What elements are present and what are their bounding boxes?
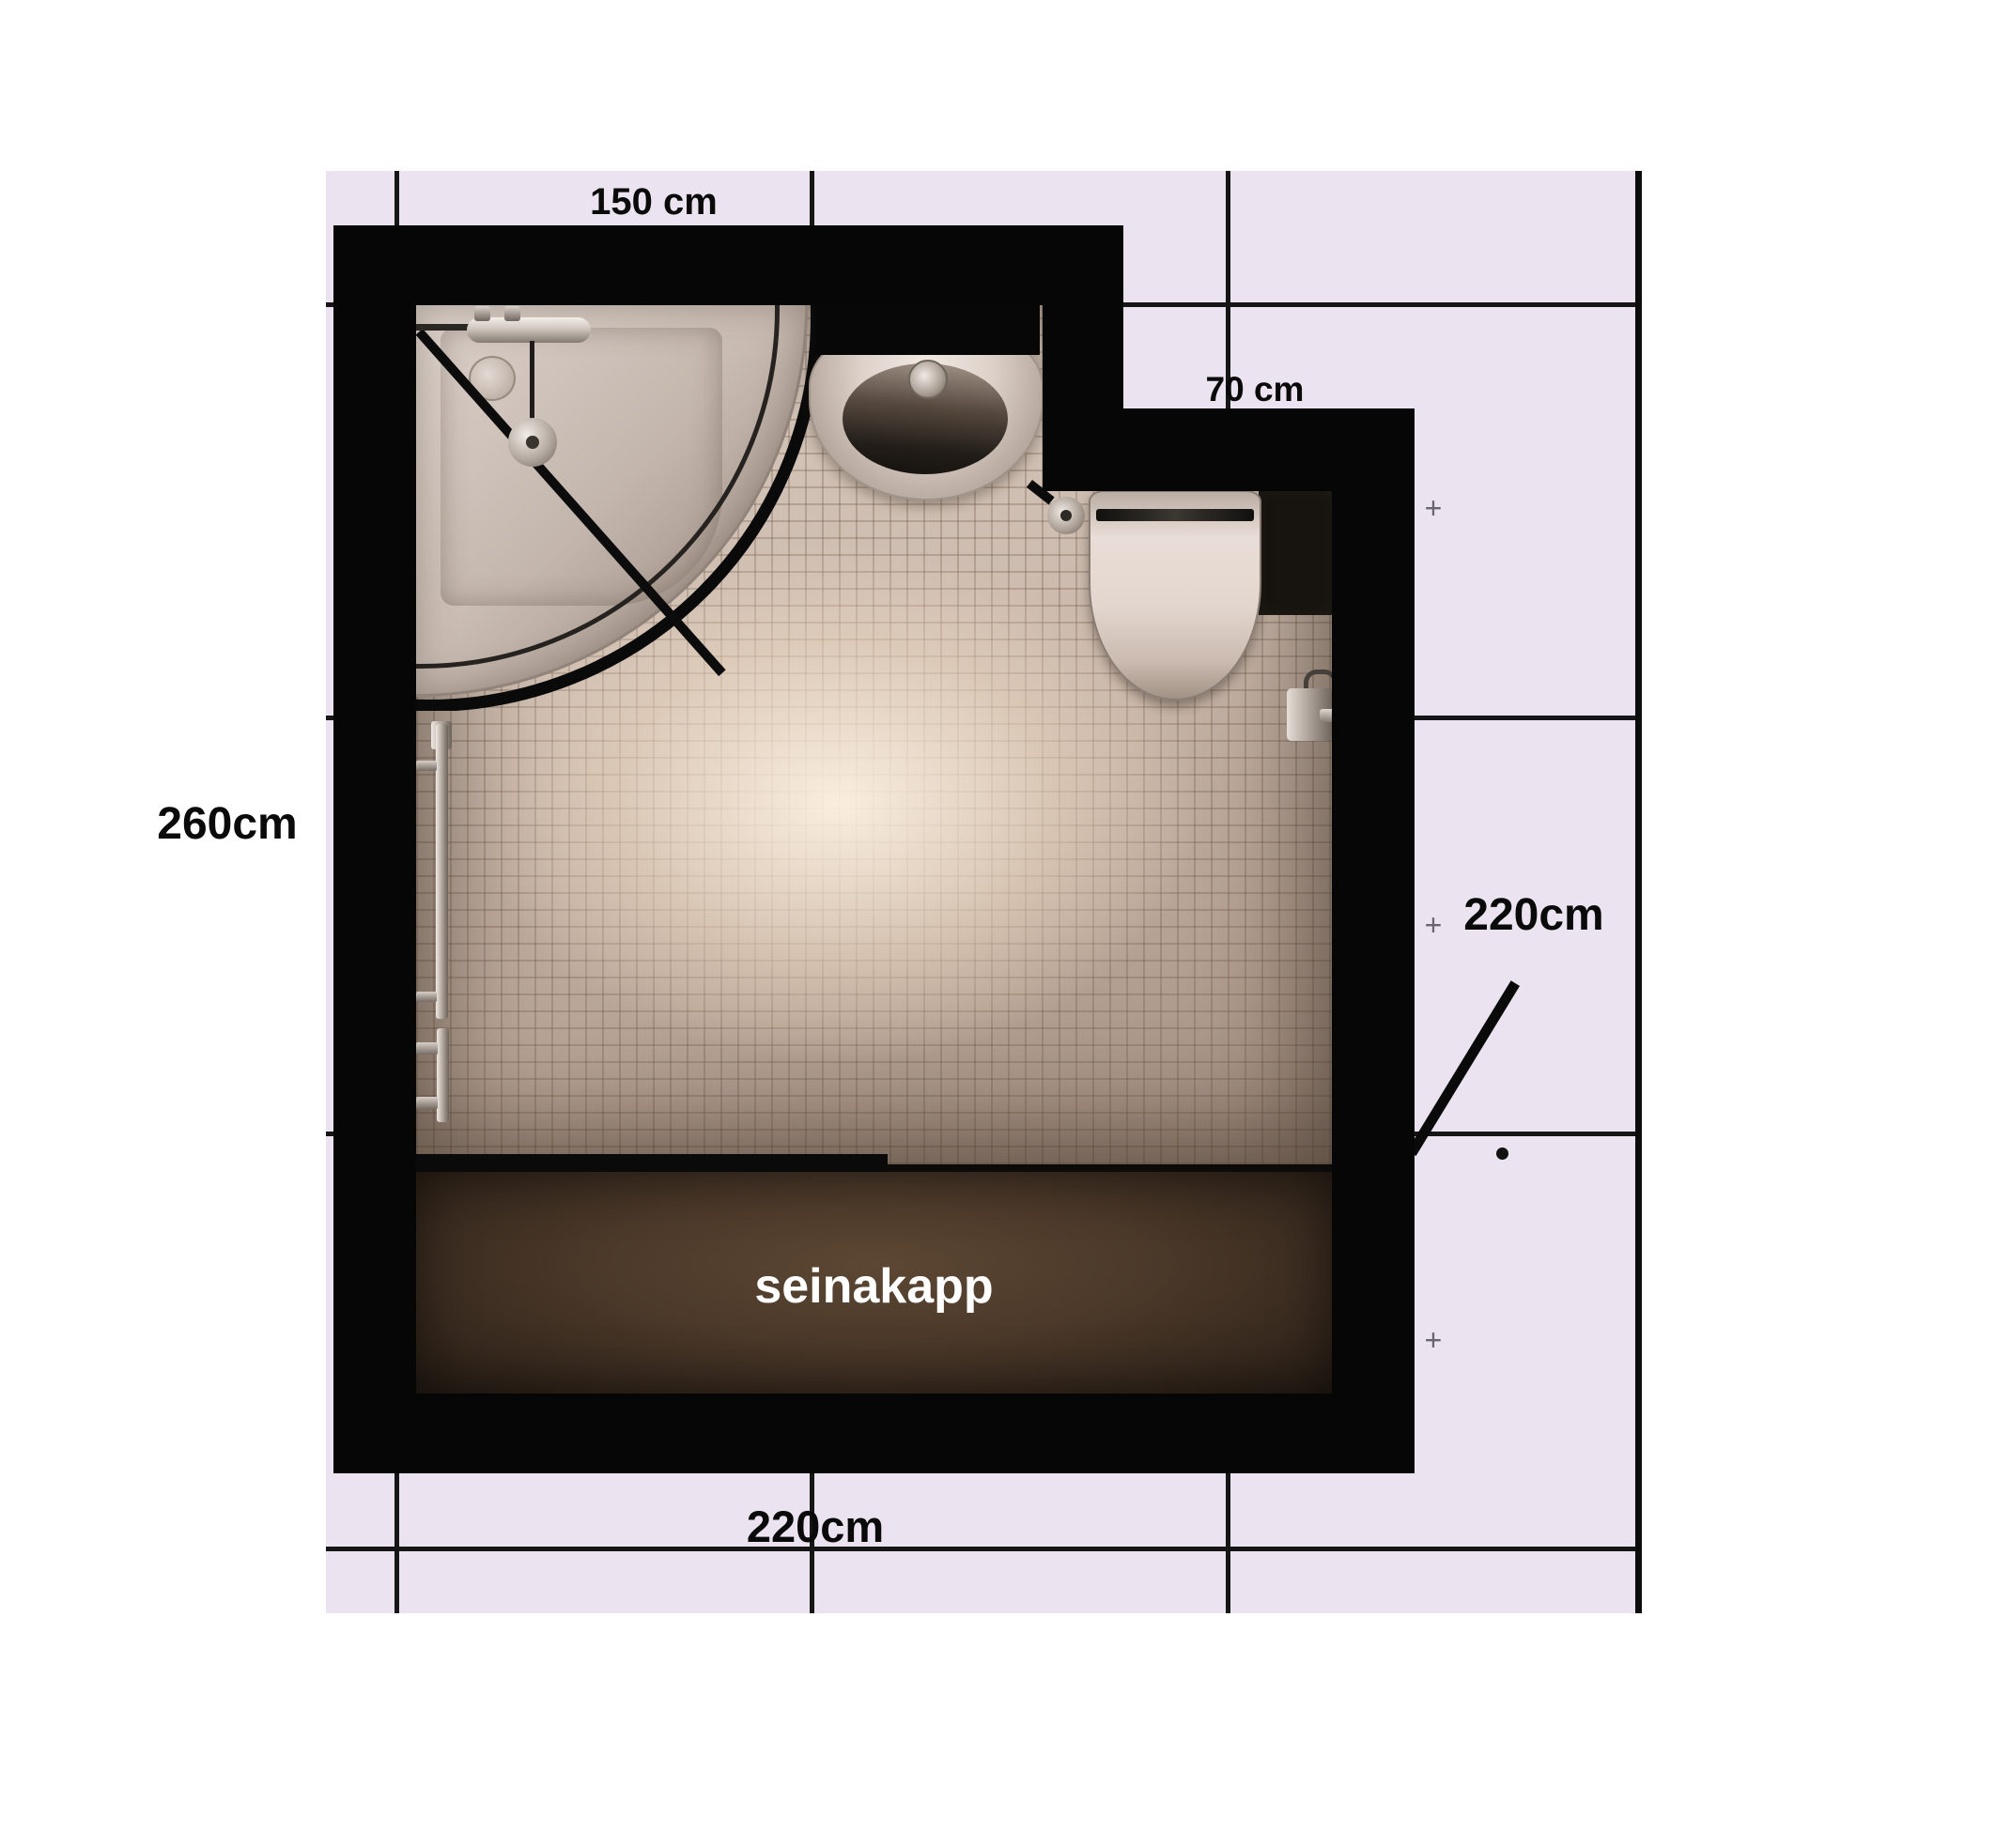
mixer-handle-right <box>504 306 520 321</box>
towel-rail-short-bracket-1 <box>416 1042 438 1055</box>
shower-enclosure <box>416 305 822 711</box>
dimension-label-notch: 70 cm <box>1114 369 1396 410</box>
dimension-label-top: 150 cm <box>513 178 795 225</box>
plus-mark-1: + <box>1417 491 1449 525</box>
shower-supply-pipe <box>416 324 471 331</box>
plus-mark-3: + <box>1417 1323 1449 1357</box>
basin-counter <box>815 305 1040 355</box>
mixer-handle-left <box>474 306 490 321</box>
shower-head-rod <box>530 341 534 425</box>
towel-rail-long <box>436 724 448 1019</box>
towel-rail-long-bracket-1 <box>416 761 437 771</box>
cabinet-body: seinakapp <box>416 1172 1332 1394</box>
shower-mixer-bar <box>467 317 591 343</box>
towel-rail-short-bracket-2 <box>416 1097 438 1109</box>
toilet <box>1089 490 1261 701</box>
faucet-icon <box>908 360 948 399</box>
grid-hline-4 <box>326 1547 1635 1551</box>
shower-enclosure-inner-arc <box>416 305 780 669</box>
dot-mark <box>1496 1147 1508 1160</box>
cabinet-label: seinakapp <box>416 1258 1332 1315</box>
floor-plan-canvas: + + + <box>0 0 1995 1848</box>
cistern-box <box>1259 491 1334 615</box>
flush-valve-icon <box>1047 497 1085 534</box>
dimension-label-right: 220cm <box>1393 889 1675 942</box>
cabinet-top-edge-left <box>416 1154 888 1173</box>
dimension-label-left: 260cm <box>86 798 368 851</box>
towel-rail-short <box>437 1028 449 1122</box>
wall-cabinet: seinakapp <box>416 1154 1332 1394</box>
towel-rail-long-bracket-2 <box>416 992 437 1002</box>
shower-head-icon <box>508 418 557 467</box>
dimension-label-bottom: 220cm <box>674 1501 956 1553</box>
toilet-seat-hinge <box>1096 509 1254 521</box>
